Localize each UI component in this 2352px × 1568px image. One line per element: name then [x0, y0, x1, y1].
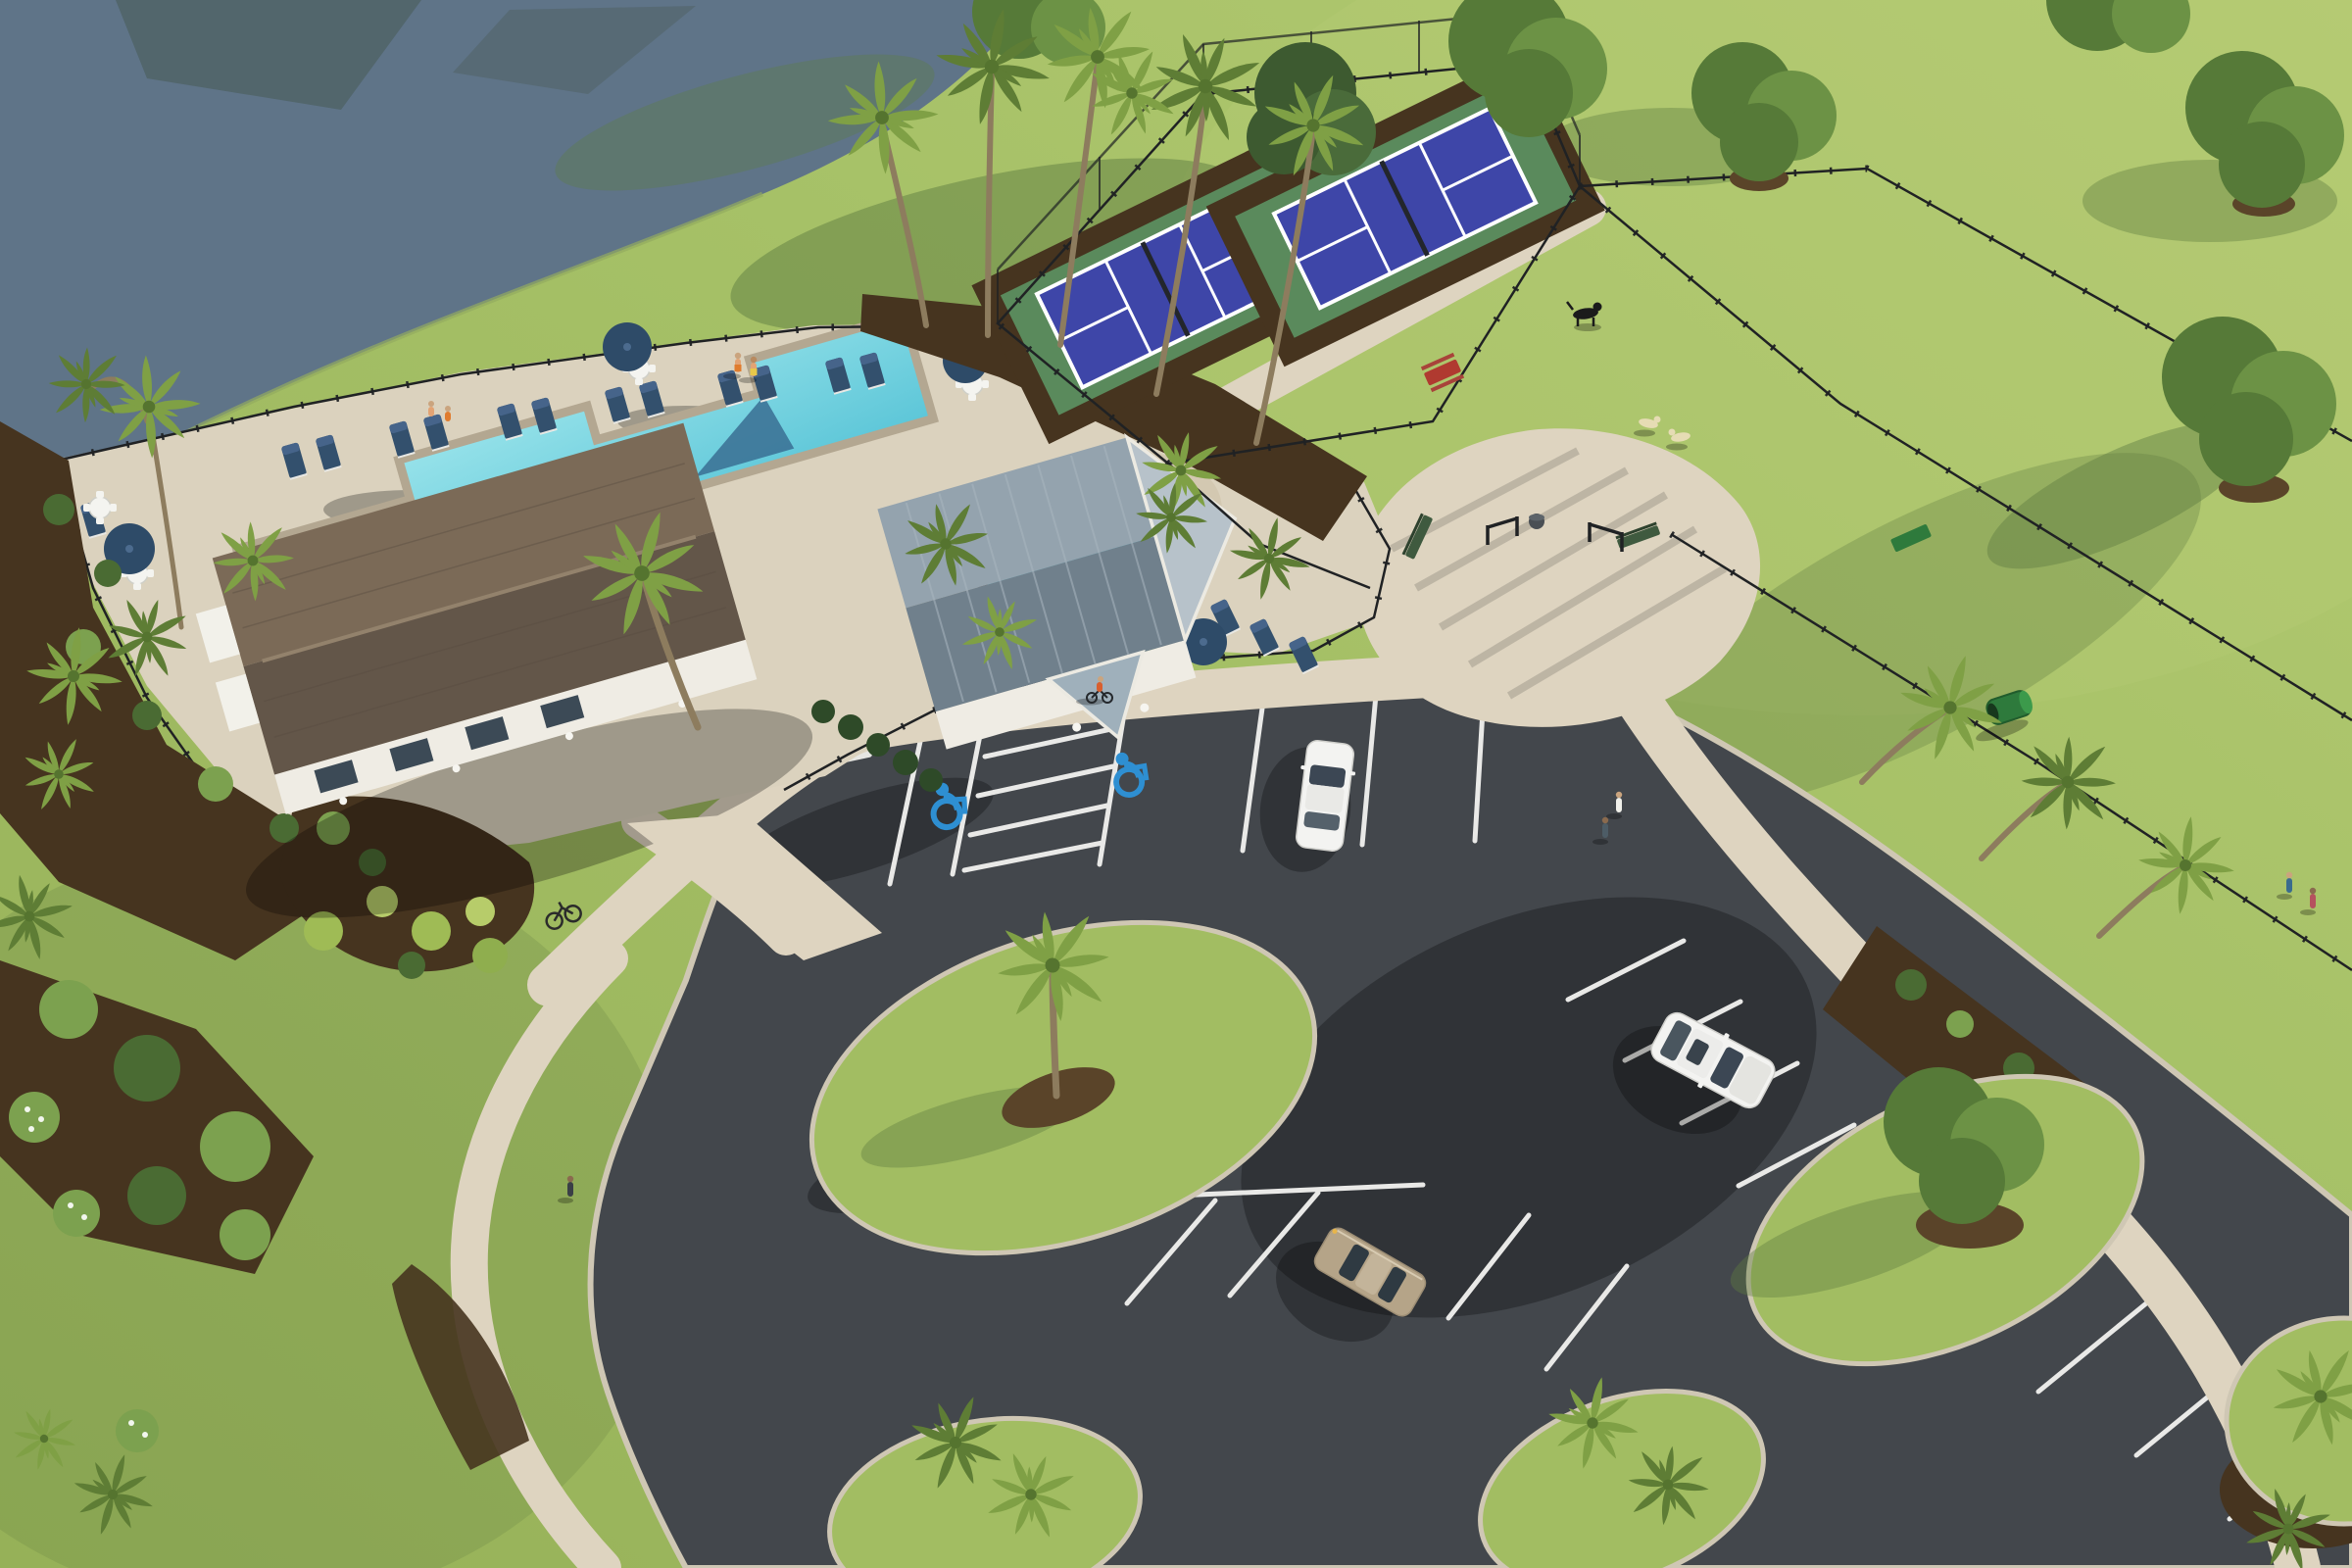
trash-can	[1529, 514, 1544, 529]
amenity-center-rendering: Aerial rendering of a community amenity …	[0, 0, 2352, 1568]
rendering-stage: Aerial rendering of a community amenity …	[0, 0, 2352, 1568]
